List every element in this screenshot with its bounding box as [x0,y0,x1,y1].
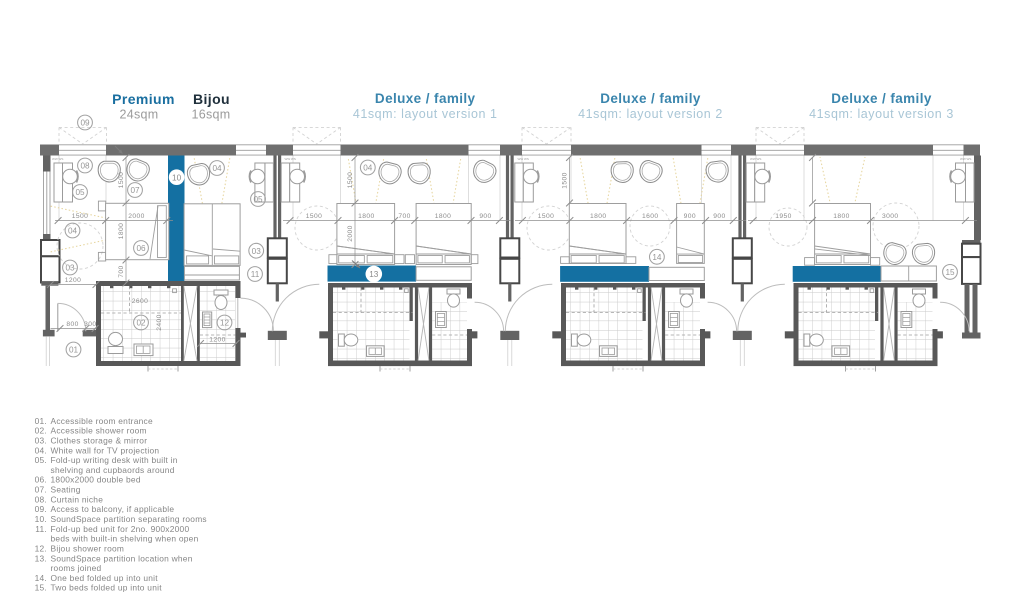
svg-text:01: 01 [69,346,79,355]
svg-text:Access to balcony, if applicab: Access to balcony, if applicable [51,504,175,514]
svg-text:02.: 02. [35,426,47,436]
svg-text:2000: 2000 [347,225,354,241]
svg-text:1600: 1600 [642,213,658,220]
svg-text:01.: 01. [35,416,47,426]
svg-text:Deluxe / family: Deluxe / family [375,91,476,106]
svg-text:Accessible room entrance: Accessible room entrance [51,416,153,426]
svg-text:13.: 13. [35,553,47,563]
svg-text:06: 06 [136,244,146,253]
svg-text:Deluxe / family: Deluxe / family [600,91,701,106]
svg-text:02: 02 [136,319,146,328]
svg-text:Curtain niche: Curtain niche [51,494,104,504]
svg-text:07.: 07. [35,485,47,495]
svg-text:06.: 06. [35,475,47,485]
svg-text:Accessible shower room: Accessible shower room [51,426,147,436]
svg-text:Bijou shower room: Bijou shower room [51,544,125,554]
svg-text:shelving and cupbaords around: shelving and cupbaords around [51,465,175,475]
svg-text:900: 900 [479,213,491,220]
svg-text:11: 11 [251,270,260,279]
svg-text:41sqm: layout version 3: 41sqm: layout version 3 [809,107,954,121]
svg-text:05: 05 [253,195,263,204]
svg-text:1500: 1500 [538,213,554,220]
svg-text:rooms joined: rooms joined [51,563,102,573]
svg-text:03: 03 [65,264,75,273]
svg-text:1800: 1800 [435,213,451,220]
svg-text:One bed folded up into unit: One bed folded up into unit [51,573,159,583]
svg-text:Fold-up bed unit for 2no. 900x: Fold-up bed unit for 2no. 900x2000 [51,524,190,534]
svg-text:03.: 03. [35,435,47,445]
svg-text:WW WS: WW WS [518,157,529,161]
svg-text:1800: 1800 [358,213,374,220]
svg-text:Premium: Premium [112,91,175,107]
svg-text:700: 700 [398,213,410,220]
svg-text:1200: 1200 [65,277,81,284]
svg-text:04: 04 [68,227,78,236]
svg-text:WW WS: WW WS [285,157,296,161]
svg-text:10: 10 [172,173,182,182]
svg-text:Bijou: Bijou [193,91,230,107]
svg-text:WW WS: WW WS [960,157,971,161]
svg-text:SoundSpace partition location: SoundSpace partition location when [51,553,193,563]
svg-text:1800: 1800 [590,213,606,220]
svg-text:White wall for TV projection: White wall for TV projection [51,445,160,455]
svg-text:1500: 1500 [118,172,125,188]
svg-text:2400: 2400 [156,314,163,330]
svg-text:24sqm: 24sqm [119,108,158,122]
svg-text:Deluxe / family: Deluxe / family [831,91,932,106]
svg-text:3000: 3000 [882,213,898,220]
svg-text:15: 15 [945,268,955,277]
svg-text:09.: 09. [35,504,47,514]
svg-text:1800: 1800 [833,213,849,220]
svg-text:04.: 04. [35,445,47,455]
svg-text:WW WS: WW WS [750,157,761,161]
svg-text:03: 03 [252,247,262,256]
svg-text:04: 04 [212,164,222,173]
svg-text:13: 13 [369,270,379,279]
svg-text:300: 300 [84,321,96,328]
svg-text:Seating: Seating [51,485,81,495]
svg-text:2000: 2000 [128,213,144,220]
svg-text:16sqm: 16sqm [191,108,230,122]
svg-text:07: 07 [130,186,140,195]
svg-text:08: 08 [80,162,90,171]
svg-text:09: 09 [80,119,90,128]
svg-text:Fold-up writing desk with buil: Fold-up writing desk with built in [51,455,178,465]
svg-text:05: 05 [75,188,85,197]
svg-text:900: 900 [684,213,696,220]
svg-text:beds with built-in shelving wh: beds with built-in shelving when open [51,534,199,544]
svg-text:WW WS: WW WS [52,157,63,161]
svg-text:10.: 10. [35,514,47,524]
svg-text:11.: 11. [35,524,47,534]
svg-text:Clothes storage & mirror: Clothes storage & mirror [51,435,148,445]
svg-text:1800: 1800 [118,223,125,239]
svg-text:800: 800 [66,321,78,328]
svg-text:08.: 08. [35,494,47,504]
svg-text:900: 900 [713,213,725,220]
svg-text:700: 700 [118,265,125,277]
svg-text:15.: 15. [35,583,47,593]
svg-text:14.: 14. [35,573,47,583]
svg-text:14: 14 [652,253,662,262]
svg-text:Two beds folded up into unit: Two beds folded up into unit [51,583,163,593]
svg-text:41sqm: layout version 2: 41sqm: layout version 2 [578,107,723,121]
svg-text:1500: 1500 [562,172,569,188]
svg-text:2600: 2600 [132,298,148,305]
svg-text:1500: 1500 [347,172,354,188]
svg-text:1200: 1200 [209,337,225,344]
svg-text:04: 04 [363,164,373,173]
svg-text:1500: 1500 [306,213,322,220]
svg-text:1950: 1950 [775,213,791,220]
svg-text:1800x2000 double bed: 1800x2000 double bed [51,475,141,485]
svg-text:12: 12 [220,319,230,328]
svg-text:1500: 1500 [72,213,88,220]
svg-text:12.: 12. [35,544,47,554]
svg-text:05.: 05. [35,455,47,465]
svg-text:41sqm: layout version 1: 41sqm: layout version 1 [353,107,498,121]
svg-text:SoundSpace partition separatin: SoundSpace partition separating rooms [51,514,207,524]
